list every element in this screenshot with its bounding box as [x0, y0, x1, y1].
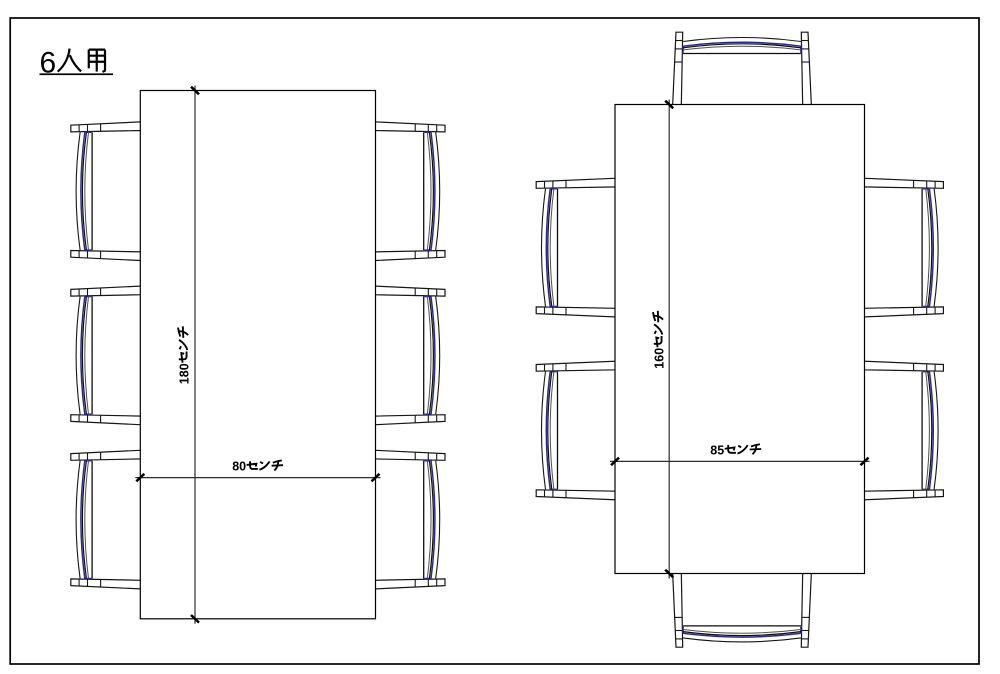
svg-text:180: 180 [177, 363, 191, 384]
svg-text:85: 85 [710, 444, 724, 458]
svg-text:80: 80 [232, 460, 246, 474]
svg-text:160: 160 [652, 348, 666, 369]
